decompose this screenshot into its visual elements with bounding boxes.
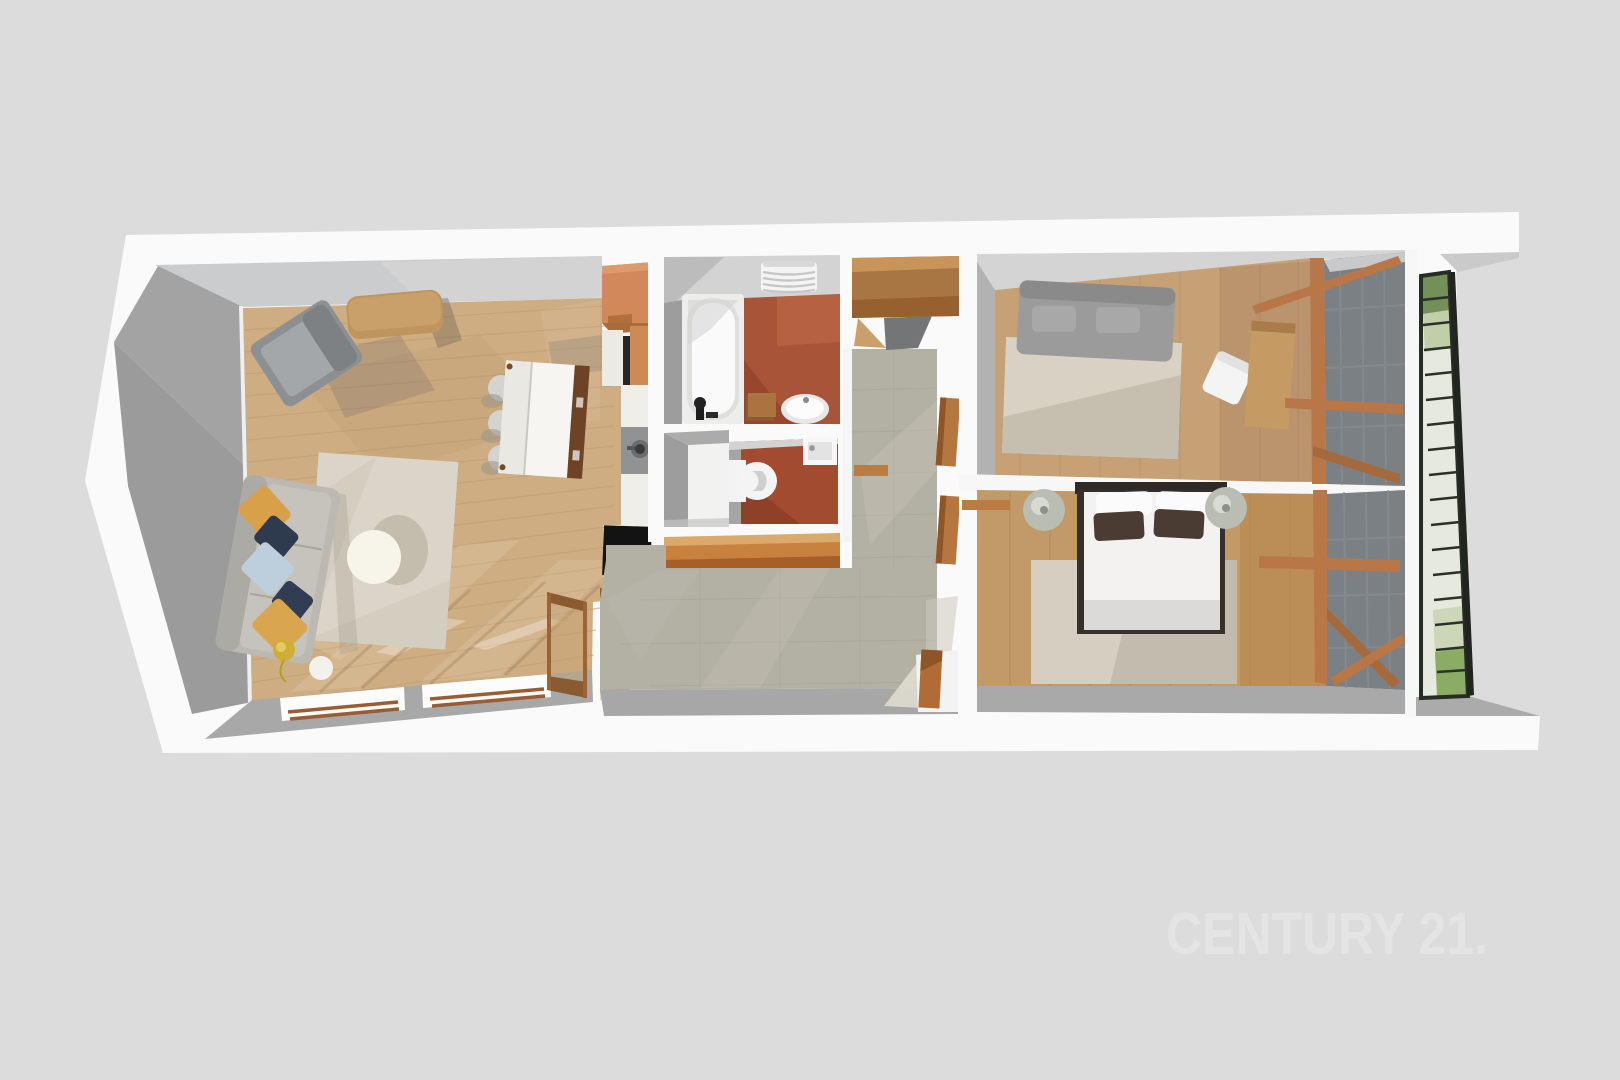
svg-text:CENTURY 21.: CENTURY 21. — [1166, 901, 1488, 967]
